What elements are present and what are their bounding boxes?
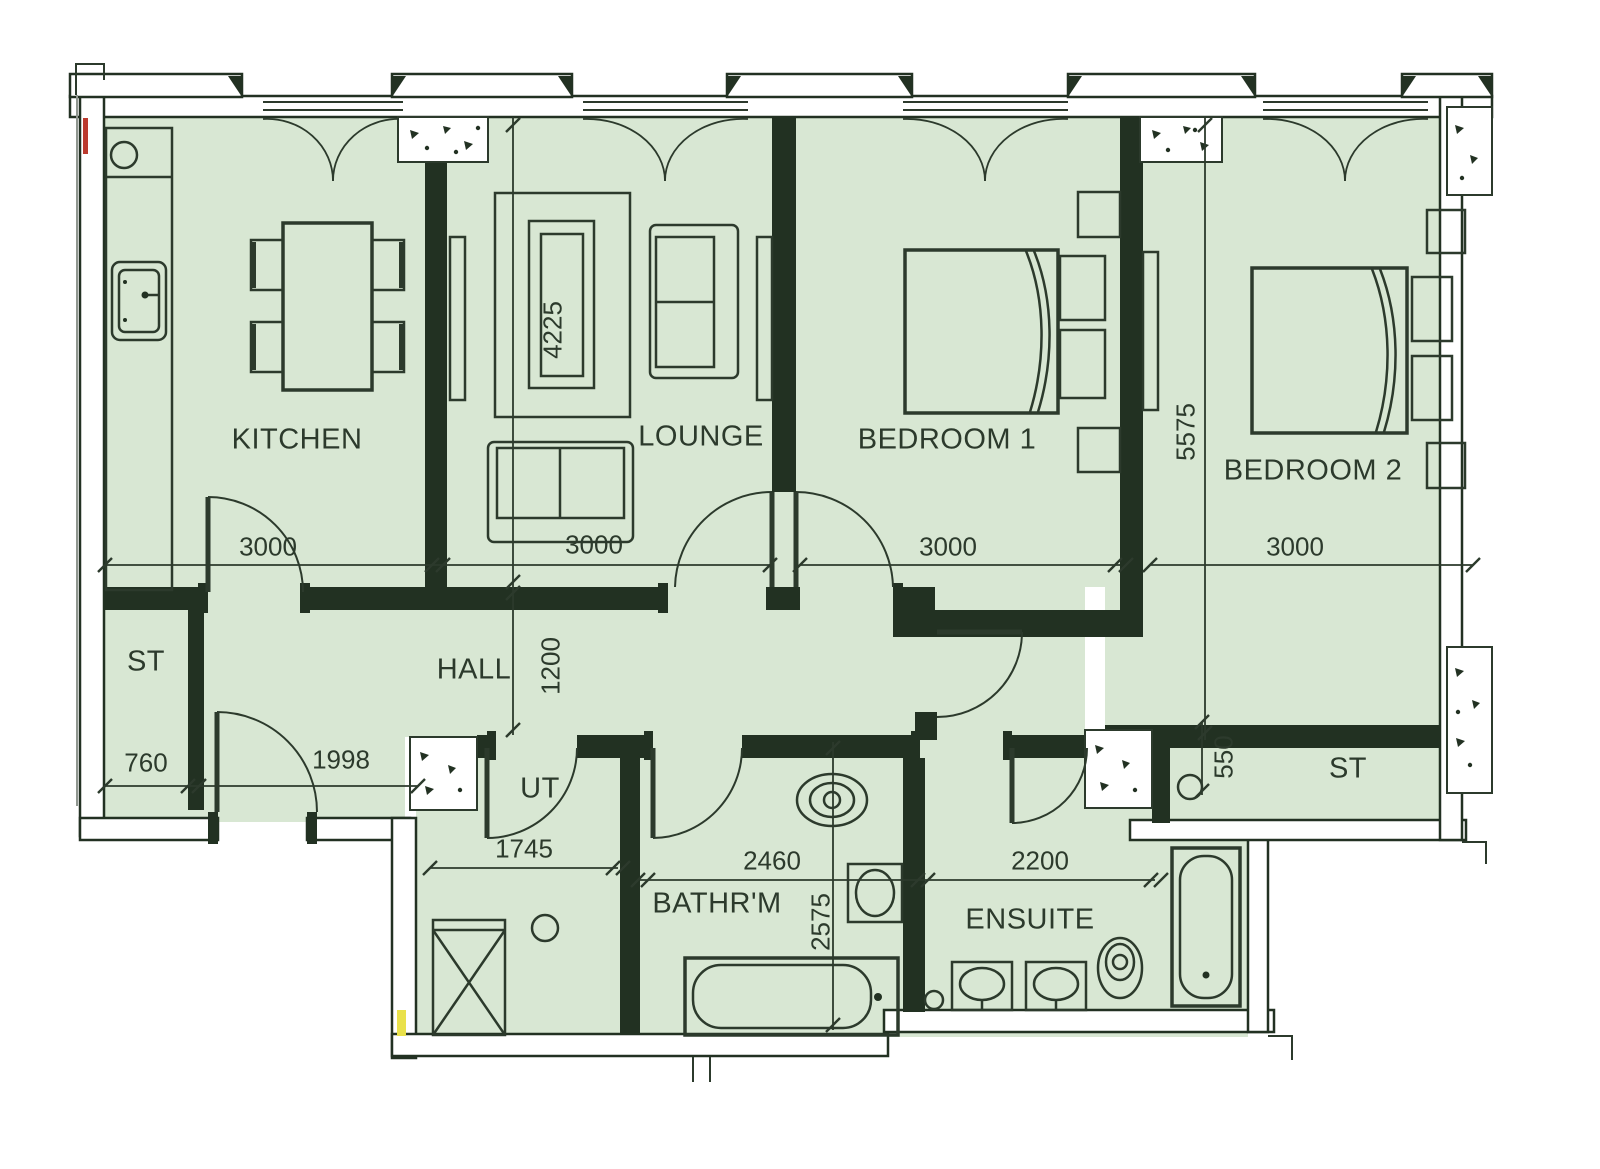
dim-bedroom2-width: 3000 [1266, 532, 1324, 563]
floor-bed2-lower [1105, 587, 1440, 737]
floorplan: KITCHEN LOUNGE BEDROOM 1 BEDROOM 2 HALL … [0, 0, 1600, 1169]
dim-store-right-depth: 550 [1209, 735, 1240, 778]
dim-ensuite-width: 2200 [1011, 846, 1069, 877]
room-label-store-right: ST [1329, 753, 1367, 786]
red-marker [83, 118, 88, 154]
dim-lounge-depth: 4225 [538, 301, 569, 359]
room-label-kitchen: KITCHEN [232, 424, 363, 457]
room-label-store-left: ST [127, 646, 165, 679]
yellow-marker [397, 1010, 406, 1036]
dim-bathroom-width: 2460 [743, 846, 801, 877]
room-label-ensuite: ENSUITE [965, 904, 1094, 937]
room-label-bathroom: BATHR'M [652, 888, 781, 921]
dim-store-left-width: 760 [124, 748, 167, 779]
dim-bedroom2-depth: 5575 [1171, 403, 1202, 461]
dim-bedroom1-width: 3000 [919, 532, 977, 563]
room-label-bedroom-2: BEDROOM 2 [1224, 455, 1403, 488]
room-label-hall: HALL [437, 654, 512, 687]
dim-hall-width: 1200 [536, 637, 567, 695]
dim-bathroom-depth: 2575 [806, 893, 837, 951]
floorplan-drawing [0, 0, 1600, 1169]
dim-kitchen-width: 3000 [239, 532, 297, 563]
room-label-utility: UT [520, 773, 560, 806]
dim-utility-width: 1745 [495, 834, 553, 865]
balcony-slabs [70, 64, 1492, 97]
room-label-bedroom-1: BEDROOM 1 [858, 424, 1037, 457]
dim-entrance-width: 1998 [312, 745, 370, 776]
dim-lounge-width: 3000 [565, 530, 623, 561]
room-label-lounge: LOUNGE [638, 421, 763, 454]
